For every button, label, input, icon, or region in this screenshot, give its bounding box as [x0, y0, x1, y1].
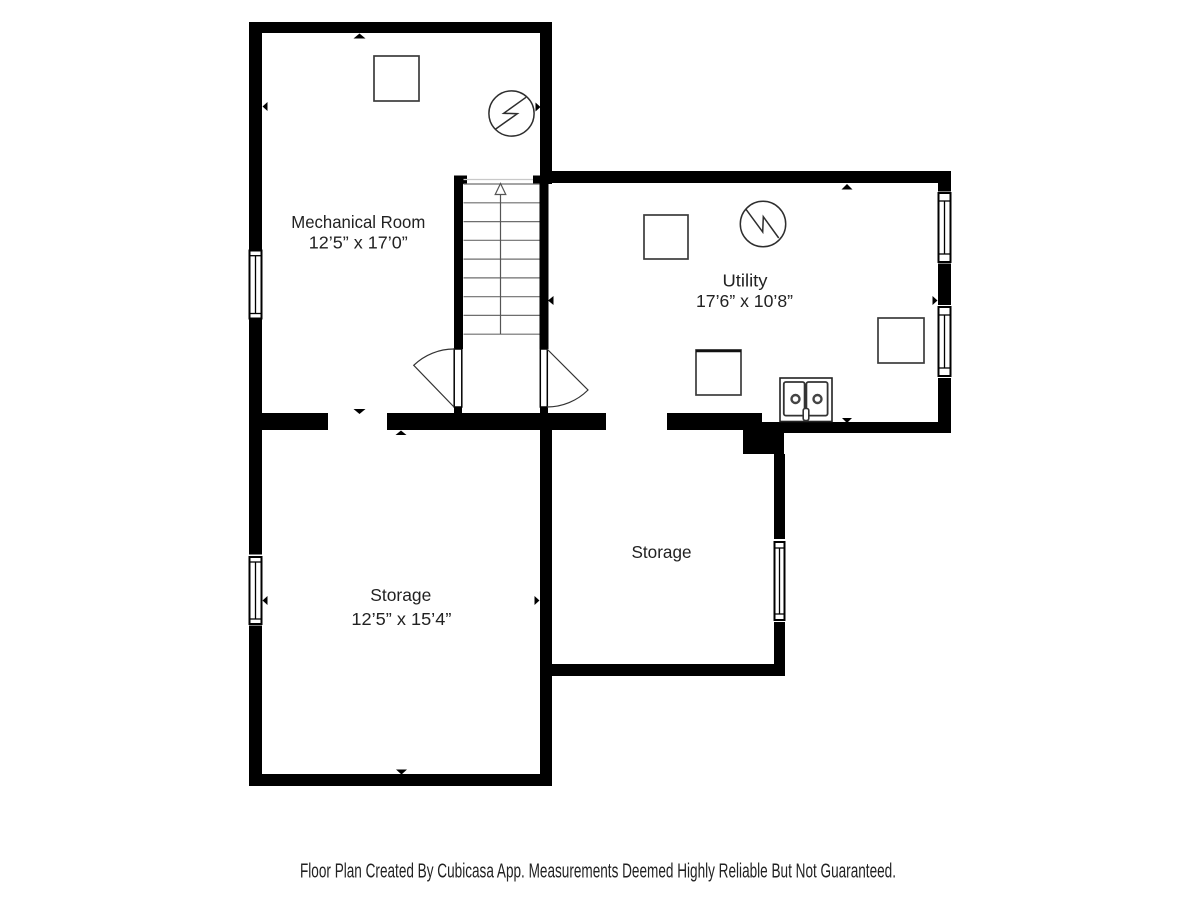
svg-text:Storage: Storage [370, 585, 431, 605]
svg-text:17’6” x 10’8”: 17’6” x 10’8” [696, 291, 793, 311]
svg-text:Floor Plan Created By Cubicasa: Floor Plan Created By Cubicasa App. Meas… [300, 860, 896, 883]
svg-text:12’5” x 15’4”: 12’5” x 15’4” [351, 609, 451, 629]
svg-text:Mechanical Room: Mechanical Room [291, 212, 425, 232]
svg-text:Utility: Utility [723, 271, 768, 291]
svg-text:12’5” x 17’0”: 12’5” x 17’0” [309, 233, 408, 253]
svg-text:Storage: Storage [632, 542, 692, 562]
